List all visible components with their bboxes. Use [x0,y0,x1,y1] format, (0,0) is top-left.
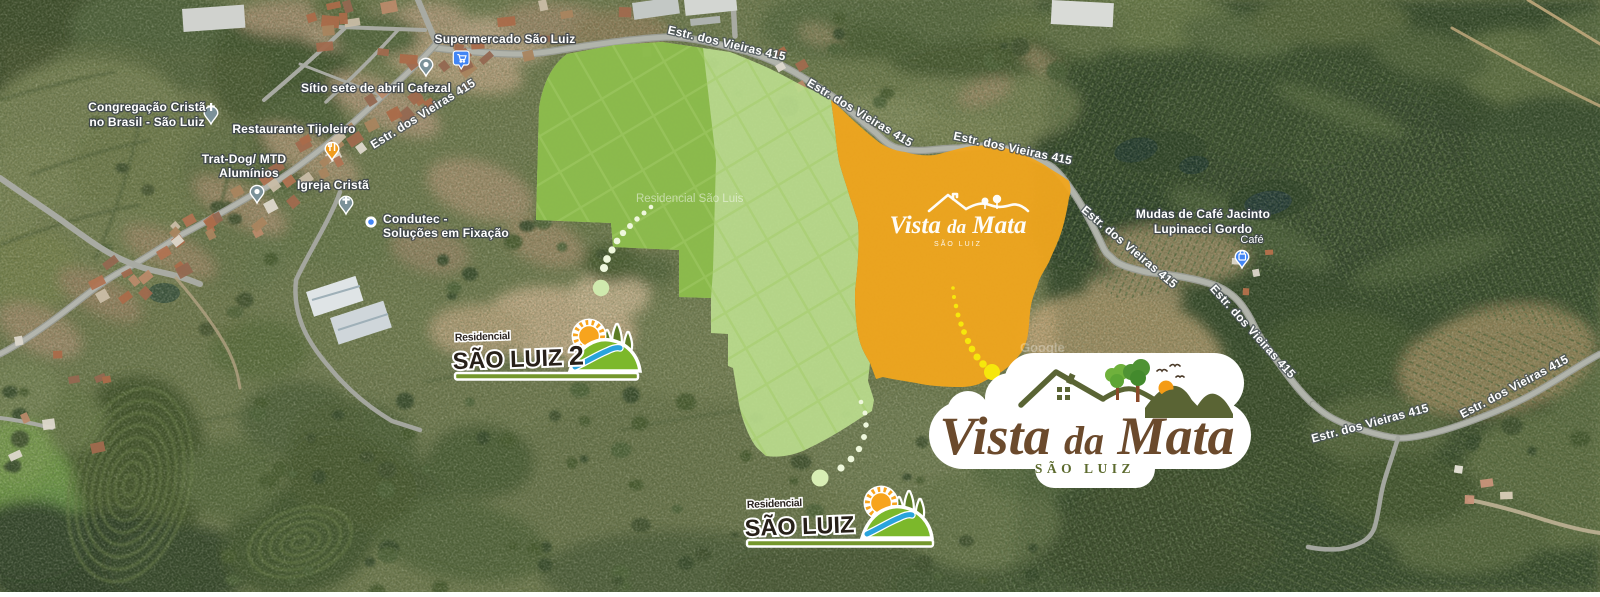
svg-text:Igreja Cristã: Igreja Cristã [297,178,369,192]
svg-text:Mudas de Café Jacinto: Mudas de Café Jacinto [1136,207,1270,221]
svg-text:Vista da Mata: Vista da Mata [889,212,1026,239]
svg-text:Trat-Dog/ MTD: Trat-Dog/ MTD [202,152,287,166]
svg-text:Residencial: Residencial [455,330,511,344]
svg-text:Condutec -: Condutec - [383,212,448,226]
svg-text:Supermercado São Luiz: Supermercado São Luiz [435,32,576,46]
svg-text:SÃO LUIZ: SÃO LUIZ [744,510,855,541]
svg-text:SÃO LUIZ: SÃO LUIZ [934,239,982,248]
svg-text:SÃO LUIZ: SÃO LUIZ [1035,461,1135,476]
svg-text:Residencial São Luis: Residencial São Luis [636,193,744,205]
svg-text:Residencial: Residencial [747,497,803,511]
svg-text:Lupinacci Gordo: Lupinacci Gordo [1154,222,1252,236]
svg-text:Sítio sete de abril Cafezal: Sítio sete de abril Cafezal [301,81,451,95]
svg-text:Café: Café [1240,234,1263,246]
svg-text:Google: Google [1020,340,1065,355]
svg-text:no Brasil - São Luiz: no Brasil - São Luiz [89,115,204,129]
svg-text:Congregação Cristã: Congregação Cristã [88,100,206,114]
svg-text:Soluções em Fixação: Soluções em Fixação [383,226,509,240]
svg-text:Alumínios: Alumínios [219,166,279,180]
svg-text:Restaurante Tijoleiro: Restaurante Tijoleiro [232,122,355,136]
